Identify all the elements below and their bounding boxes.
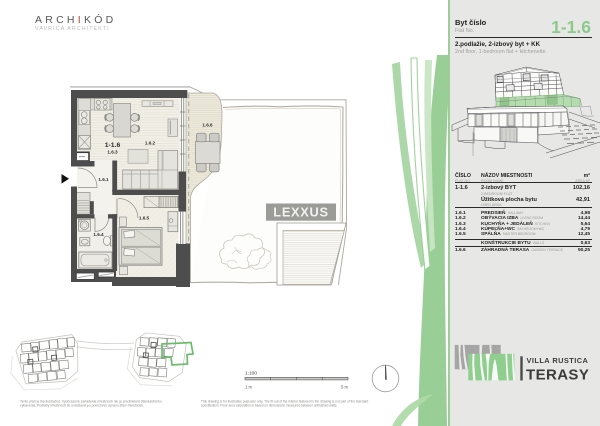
svg-text:1.6.2: 1.6.2 [145, 141, 156, 146]
svg-text:1.6.5: 1.6.5 [139, 216, 150, 221]
svg-text:TERASY: TERASY [526, 367, 589, 384]
svg-text:1.6.6: 1.6.6 [202, 123, 213, 128]
svg-text:specification. Floor area calc: specification. Floor area calculation is… [201, 404, 337, 408]
svg-text:1 m: 1 m [245, 385, 252, 390]
svg-text:VILLA RUSTICA: VILLA RUSTICA [527, 356, 589, 365]
svg-text:LEXXUS: LEXXUS [273, 205, 328, 220]
svg-text:1.6.4: 1.6.4 [93, 232, 104, 237]
svg-text:5 m: 5 m [341, 385, 348, 390]
svg-text:1-1.6: 1-1.6 [105, 142, 121, 149]
svg-text:vybavenia. Podlahy miestností: vybavenia. Podlahy miestností sú uvádzan… [20, 404, 144, 408]
svg-text:1.6.3: 1.6.3 [107, 150, 118, 155]
svg-text:1.6.1: 1.6.1 [98, 177, 109, 182]
svg-text:1:100: 1:100 [245, 371, 257, 377]
